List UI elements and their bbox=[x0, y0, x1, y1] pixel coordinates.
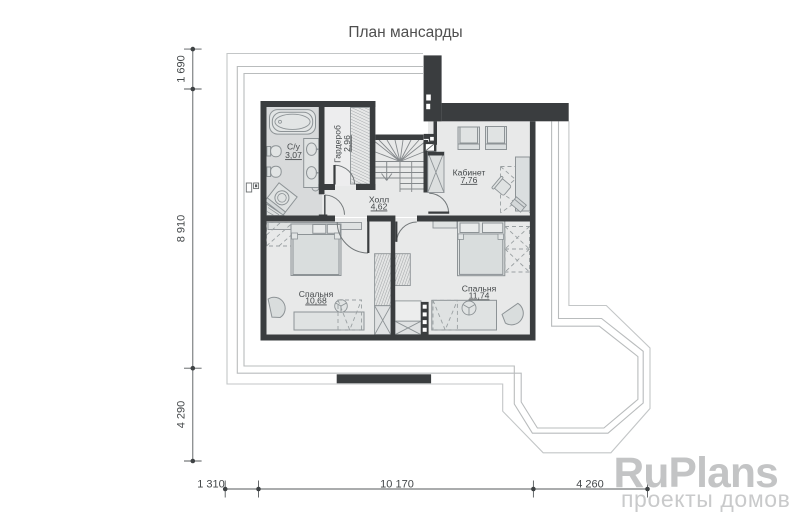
svg-text:7,76: 7,76 bbox=[461, 175, 478, 185]
svg-text:10,68: 10,68 bbox=[305, 296, 327, 306]
svg-text:1 310: 1 310 bbox=[197, 478, 225, 490]
svg-text:План мансарды: План мансарды bbox=[348, 24, 462, 41]
svg-text:4,62: 4,62 bbox=[371, 202, 388, 212]
svg-text:4 290: 4 290 bbox=[176, 401, 188, 429]
svg-text:3,07: 3,07 bbox=[285, 150, 302, 160]
svg-text:2,96: 2,96 bbox=[342, 135, 352, 152]
svg-text:4 260: 4 260 bbox=[576, 478, 604, 490]
svg-text:11,74: 11,74 bbox=[469, 290, 490, 300]
svg-text:1 690: 1 690 bbox=[176, 55, 188, 83]
svg-text:проекты домов: проекты домов bbox=[621, 486, 790, 512]
svg-text:Гардероб: Гардероб bbox=[332, 125, 342, 163]
svg-text:8 910: 8 910 bbox=[176, 215, 188, 243]
svg-text:10 170: 10 170 bbox=[380, 478, 414, 490]
